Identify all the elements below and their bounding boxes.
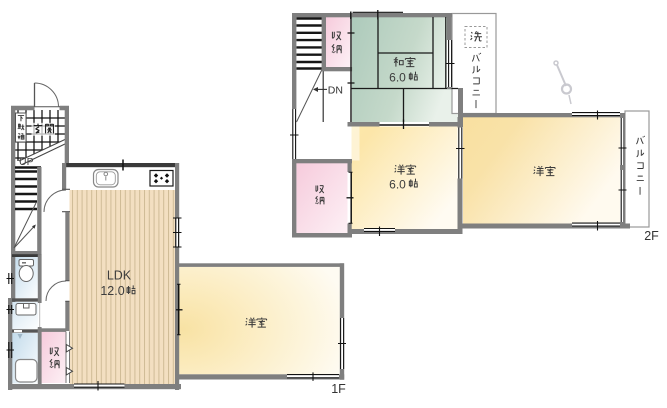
svg-text:LDK: LDK [107,269,132,283]
svg-text:UP: UP [19,156,34,168]
svg-text:2F: 2F [644,229,659,243]
svg-text:DN: DN [328,84,343,96]
svg-text:1F: 1F [331,382,346,396]
svg-text:6.0: 6.0 [389,71,406,85]
svg-text:12.0: 12.0 [100,284,124,298]
svg-text:6.0: 6.0 [389,178,406,192]
